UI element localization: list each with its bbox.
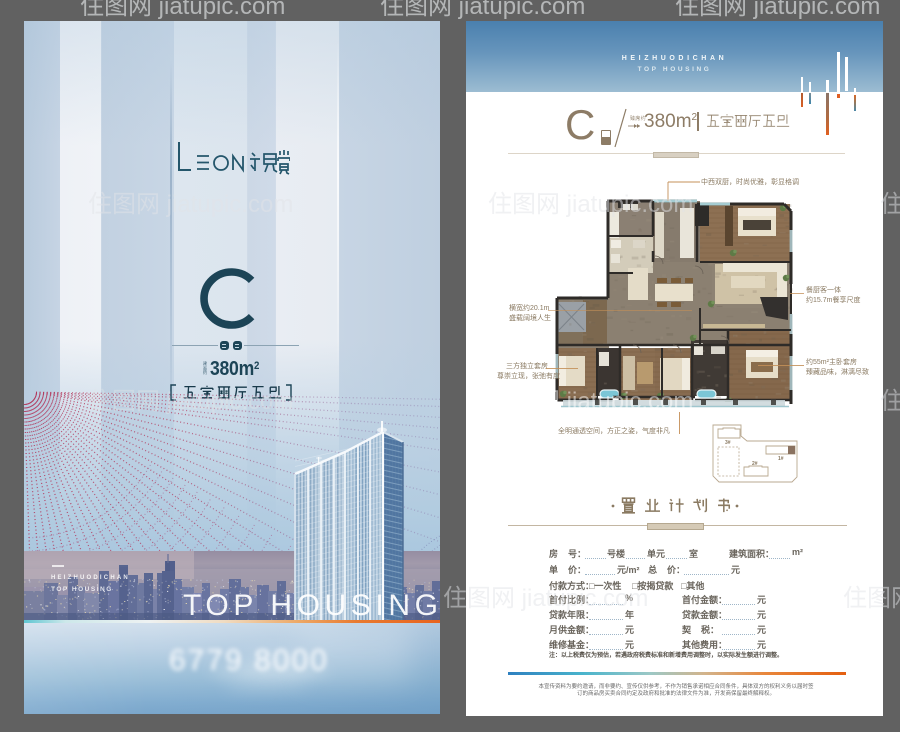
svg-text:3#: 3# xyxy=(725,440,731,446)
svg-text:1#: 1# xyxy=(778,456,784,462)
svg-text:2#: 2# xyxy=(752,461,758,467)
